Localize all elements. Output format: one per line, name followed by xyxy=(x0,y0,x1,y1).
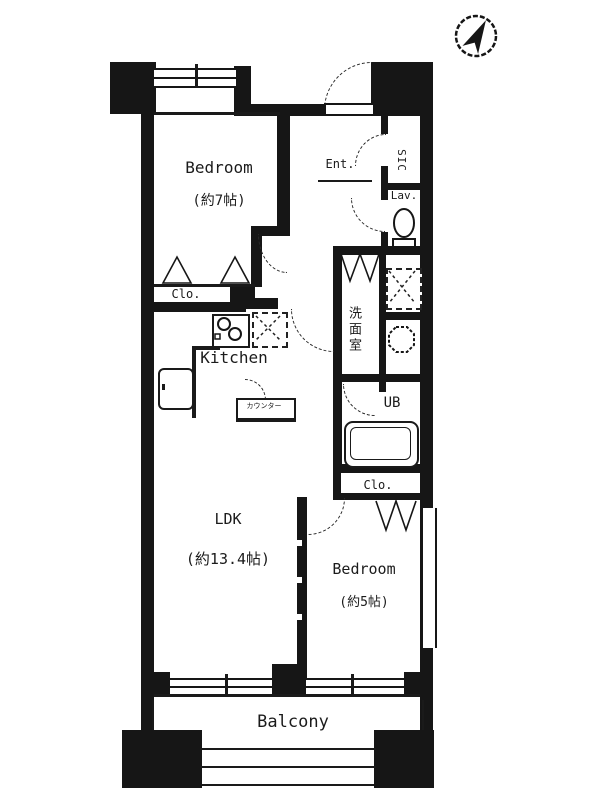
wall-segment xyxy=(333,374,433,382)
counter-label: カウンター xyxy=(238,403,290,410)
toilet-icon xyxy=(391,206,417,250)
range-hood-cross-icon xyxy=(252,312,284,344)
partition-notch xyxy=(297,614,302,620)
balcony-label: Balcony xyxy=(238,714,348,731)
partition-notch xyxy=(297,577,302,583)
balcony-rail xyxy=(200,766,376,768)
bedroom-right-size: (約5帖) xyxy=(318,596,410,609)
unit-bath-door-arc xyxy=(343,384,375,416)
closet-door-icon xyxy=(374,499,418,533)
floor-plan: カウンター Bedroom (約7帖) Ent. SIC Lav. Clo. K… xyxy=(0,0,600,800)
balcony-rail xyxy=(200,748,376,750)
wall-segment xyxy=(381,232,388,248)
stove-burners-icon xyxy=(212,314,246,344)
balcony-side xyxy=(422,700,424,730)
hall-door-arc xyxy=(291,309,334,352)
window-tick xyxy=(351,674,354,696)
bedroom-top-label: Bedroom xyxy=(164,160,274,176)
wash-basin-icon xyxy=(388,326,415,353)
closet-top-label: Clo. xyxy=(160,288,212,300)
counter-door-arc xyxy=(245,379,266,400)
lavatory-door-arc xyxy=(351,198,385,232)
wall-segment xyxy=(244,298,278,309)
wall-segment xyxy=(277,115,290,226)
window-tick xyxy=(195,64,198,88)
wall-segment xyxy=(404,672,420,696)
wall-segment xyxy=(379,255,386,392)
kitchen-label: Kitchen xyxy=(192,350,276,366)
wall-segment xyxy=(381,116,388,134)
entrance-door-leaf xyxy=(324,103,375,116)
closet-door-icon xyxy=(158,254,254,284)
washroom-label: 洗面室 xyxy=(347,288,360,372)
lavatory-label: Lav. xyxy=(388,190,420,201)
wall-segment xyxy=(381,312,420,320)
bathtub-inner-icon xyxy=(350,427,411,460)
balcony-edge xyxy=(154,694,420,697)
refrigerator-handle-icon xyxy=(162,384,165,390)
bedroom-right-label: Bedroom xyxy=(314,562,414,577)
wall-segment xyxy=(272,664,306,696)
washing-machine-cross-icon xyxy=(386,268,418,306)
balcony-rail xyxy=(202,784,374,786)
partition-notch xyxy=(297,540,302,546)
window-bedroom-right xyxy=(421,508,437,648)
folding-door-icon xyxy=(340,252,380,284)
entrance-step-line xyxy=(318,180,372,182)
wall-segment xyxy=(374,730,434,788)
wall-segment xyxy=(234,66,251,116)
balcony-side xyxy=(152,700,154,730)
bedroom-top-size: (約7帖) xyxy=(164,194,274,208)
ldk-size: (約13.4帖) xyxy=(162,552,294,567)
compass-icon xyxy=(452,12,500,60)
bedroom-right-door-arc xyxy=(308,498,345,535)
wall-segment xyxy=(154,112,280,115)
wall-segment xyxy=(154,672,170,696)
closet-right-label: Clo. xyxy=(348,479,408,491)
bedroom-top-door-arc xyxy=(258,234,287,273)
wall-segment xyxy=(141,62,154,734)
ldk-label: LDK xyxy=(180,512,276,527)
wall-segment xyxy=(122,730,202,788)
entrance-label: Ent. xyxy=(320,158,360,170)
wall-segment xyxy=(371,62,433,116)
window-tick xyxy=(225,674,228,696)
unit-bath-label: UB xyxy=(374,396,410,410)
shoe-closet-label: SIC xyxy=(387,134,415,186)
